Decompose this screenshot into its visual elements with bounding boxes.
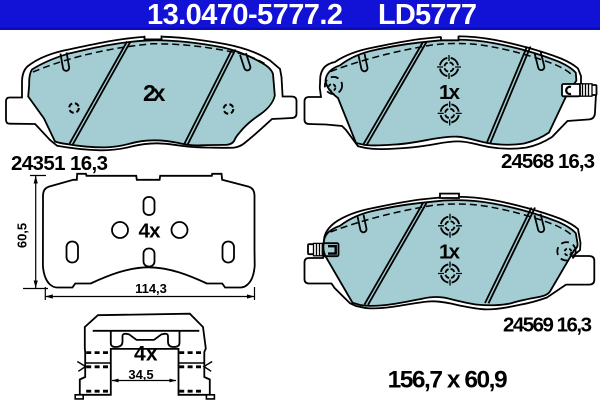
svg-text:1x: 1x	[439, 81, 461, 104]
svg-text:34,5: 34,5	[128, 367, 153, 382]
svg-text:24351 16,3: 24351 16,3	[11, 152, 108, 175]
svg-text:1x: 1x	[439, 240, 461, 263]
svg-text:2x: 2x	[143, 80, 166, 106]
svg-text:24569 16,3: 24569 16,3	[503, 314, 592, 337]
svg-text:13.0470-5777.2: 13.0470-5777.2	[147, 0, 343, 31]
svg-text:114,3: 114,3	[135, 281, 167, 296]
svg-text:156,7 x 60,9: 156,7 x 60,9	[388, 366, 508, 393]
svg-text:4x: 4x	[139, 220, 162, 243]
svg-text:4x: 4x	[134, 343, 158, 366]
svg-text:LD5777: LD5777	[378, 0, 477, 31]
svg-text:60,5: 60,5	[15, 223, 30, 248]
svg-text:24568 16,3: 24568 16,3	[501, 150, 595, 173]
